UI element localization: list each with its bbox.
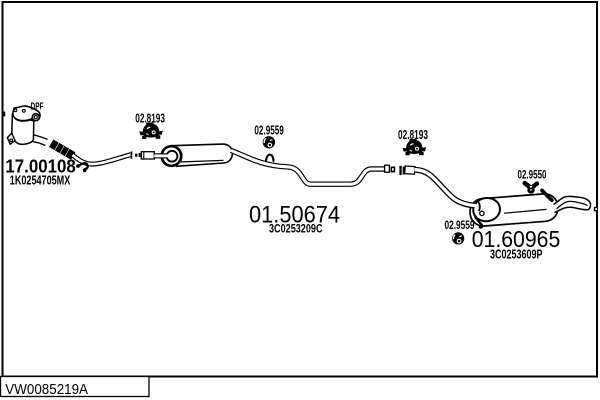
- svg-text:02.9550: 02.9550: [518, 168, 547, 182]
- svg-text:02.8193: 02.8193: [398, 127, 428, 142]
- svg-text:02.9559: 02.9559: [445, 218, 475, 232]
- svg-text:02.8193: 02.8193: [135, 110, 165, 125]
- svg-text:1K0254705MX: 1K0254705MX: [10, 173, 71, 187]
- svg-text:3C0253609P: 3C0253609P: [490, 248, 543, 262]
- svg-text:DPF: DPF: [31, 101, 44, 112]
- svg-text:02.9559: 02.9559: [254, 122, 283, 137]
- svg-text:VW0085219A: VW0085219A: [5, 381, 88, 398]
- svg-text:3C0253209C: 3C0253209C: [269, 224, 323, 236]
